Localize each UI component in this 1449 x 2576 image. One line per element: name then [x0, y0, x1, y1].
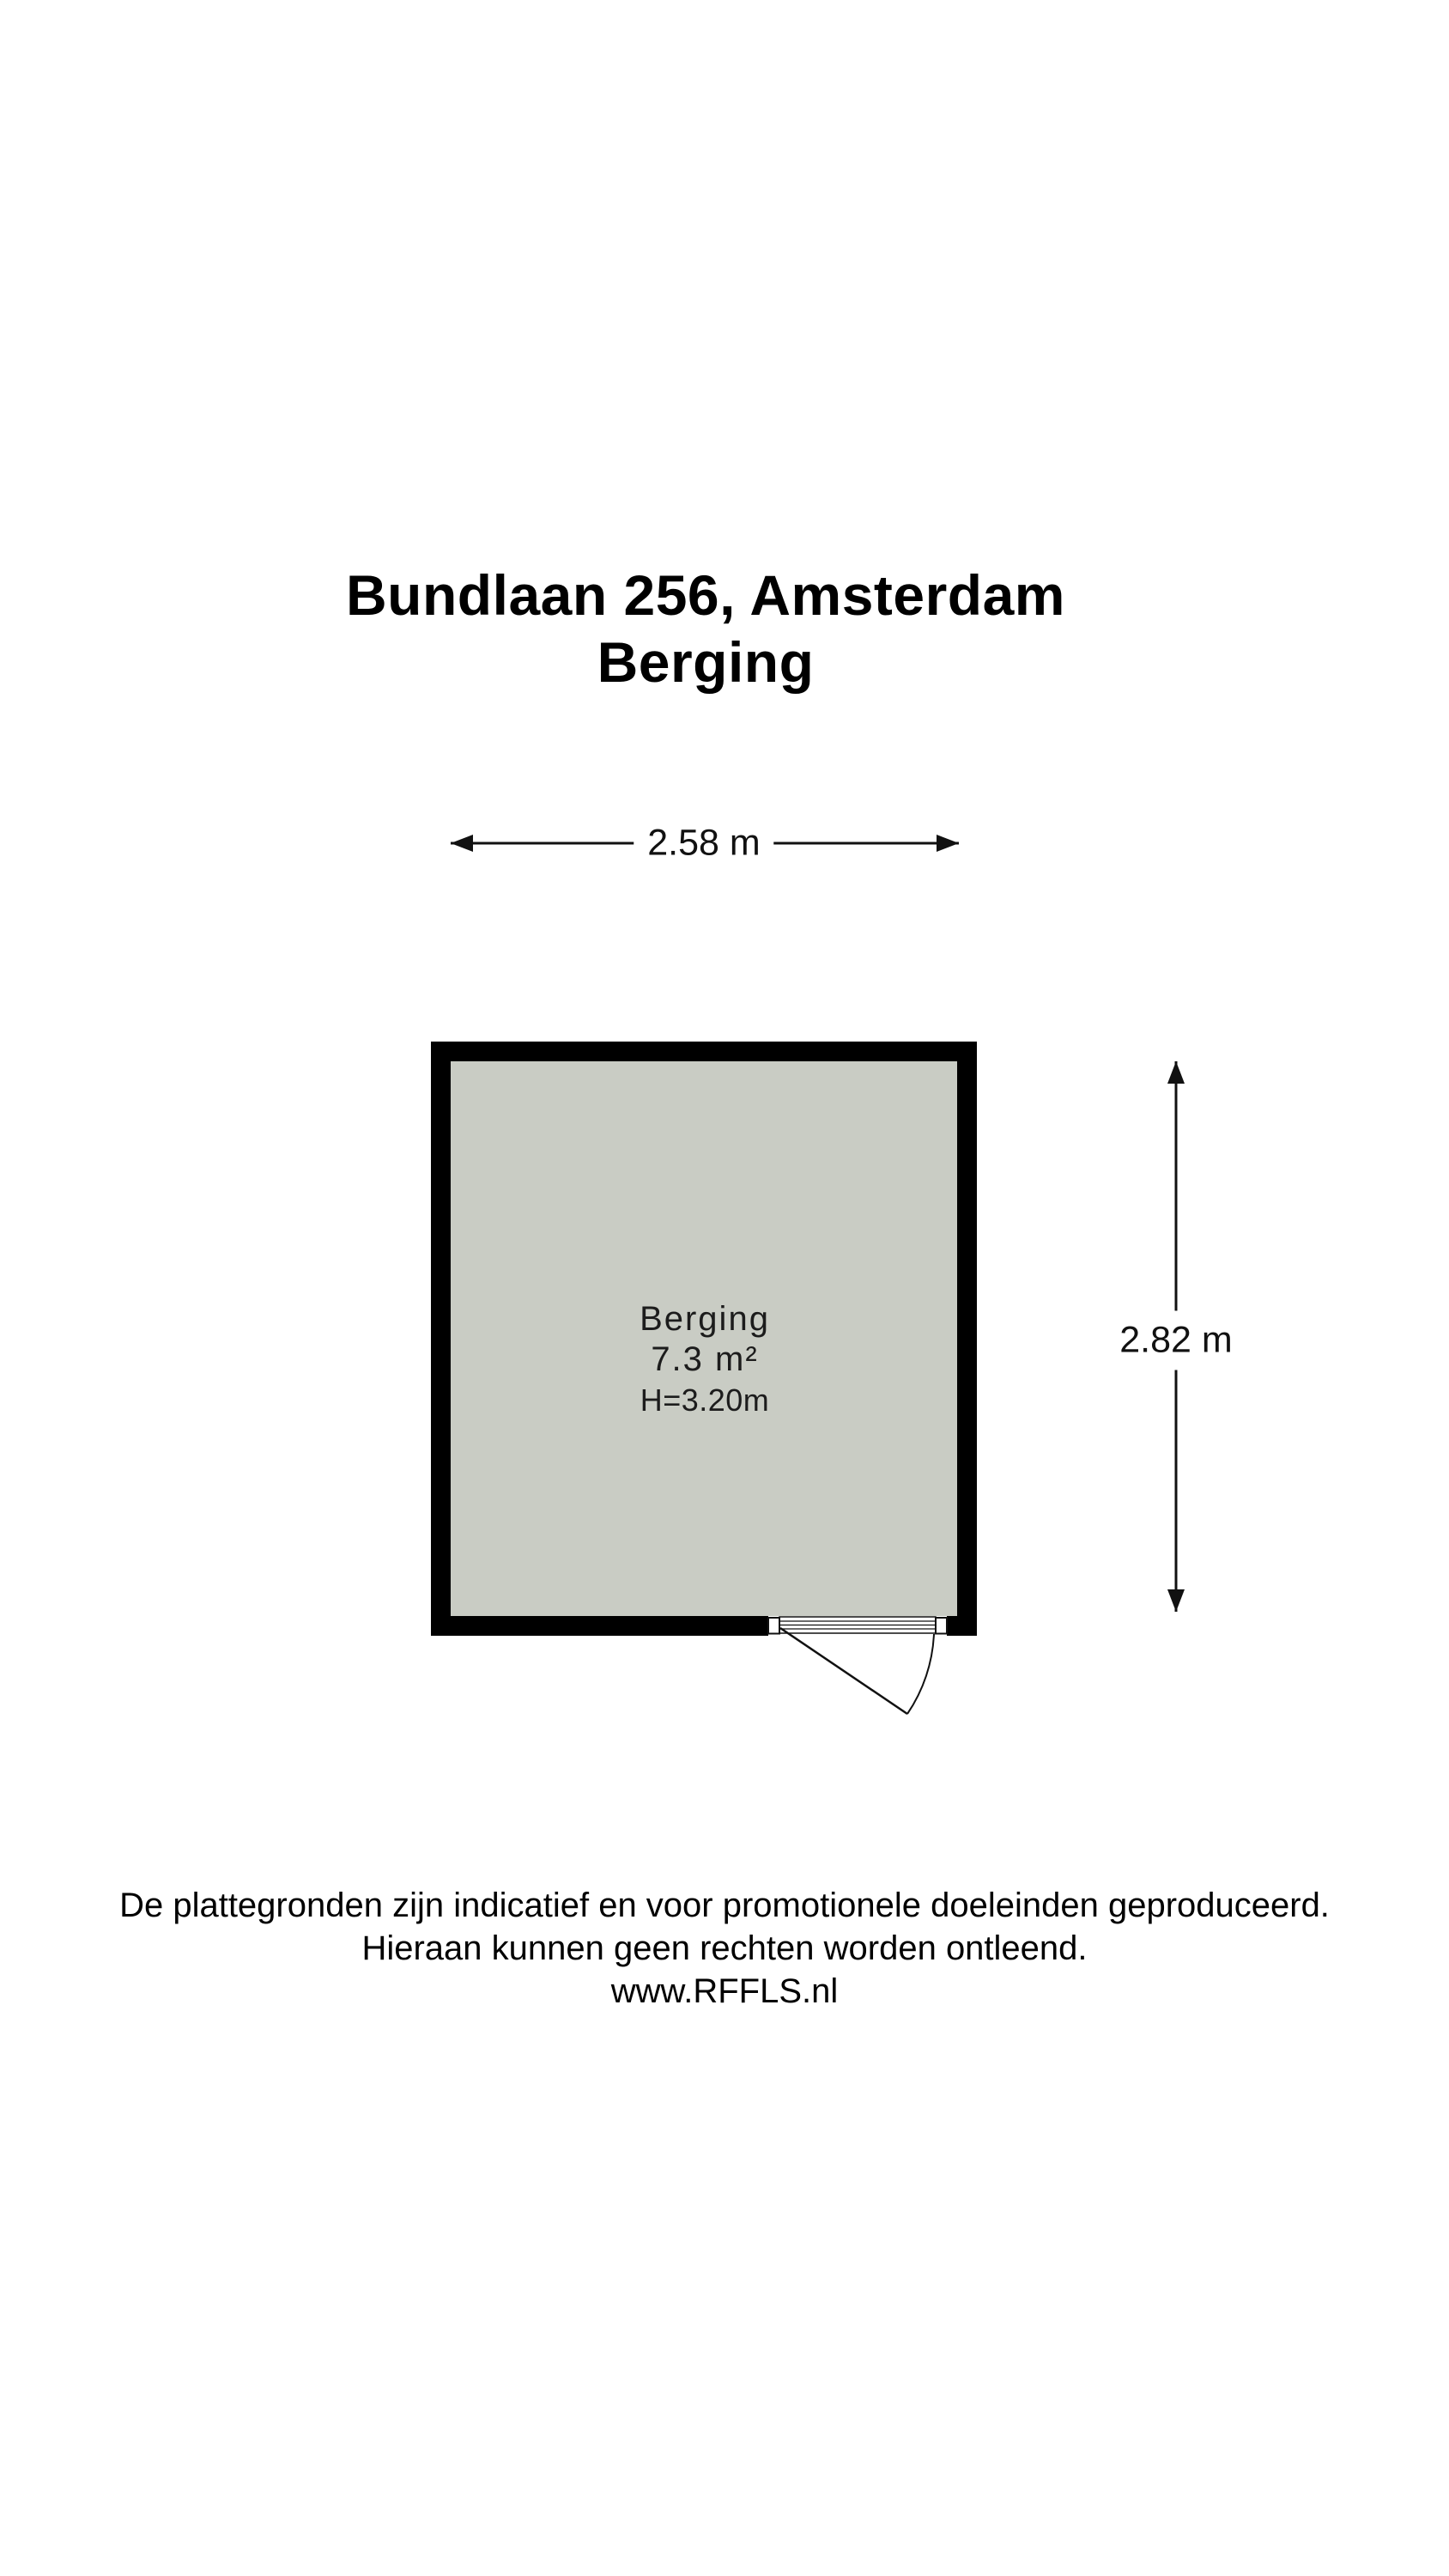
room-name-label: Berging	[640, 1299, 770, 1340]
floorplan-drawing	[0, 0, 1449, 2576]
width-dimension-label: 2.58 m	[634, 821, 773, 866]
room-ceiling-height-label: H=3.20m	[640, 1380, 770, 1420]
disclaimer-line-2: Hieraan kunnen geen rechten worden ontle…	[119, 1927, 1330, 1970]
height-dimension-label: 2.82 m	[1107, 1311, 1244, 1370]
disclaimer: De plattegronden zijn indicatief en voor…	[119, 1884, 1330, 2013]
arrow-up-icon	[1167, 1061, 1185, 1084]
door-leaf	[780, 1628, 907, 1714]
disclaimer-line-1: De plattegronden zijn indicatief en voor…	[119, 1884, 1330, 1927]
door-swing-arc	[907, 1634, 934, 1714]
door-jamb-left	[768, 1618, 779, 1634]
disclaimer-website: www.RFFLS.nl	[119, 1970, 1330, 2013]
door-jamb-right	[936, 1618, 947, 1634]
door	[768, 1616, 947, 1714]
room-area-label: 7.3 m²	[640, 1340, 770, 1380]
arrow-left-icon	[451, 835, 473, 852]
floorplan-page: Bundlaan 256, Amsterdam Berging	[0, 0, 1449, 2576]
arrow-right-icon	[937, 835, 959, 852]
room-labels: Berging 7.3 m² H=3.20m	[640, 1299, 770, 1420]
arrow-down-icon	[1167, 1589, 1185, 1612]
